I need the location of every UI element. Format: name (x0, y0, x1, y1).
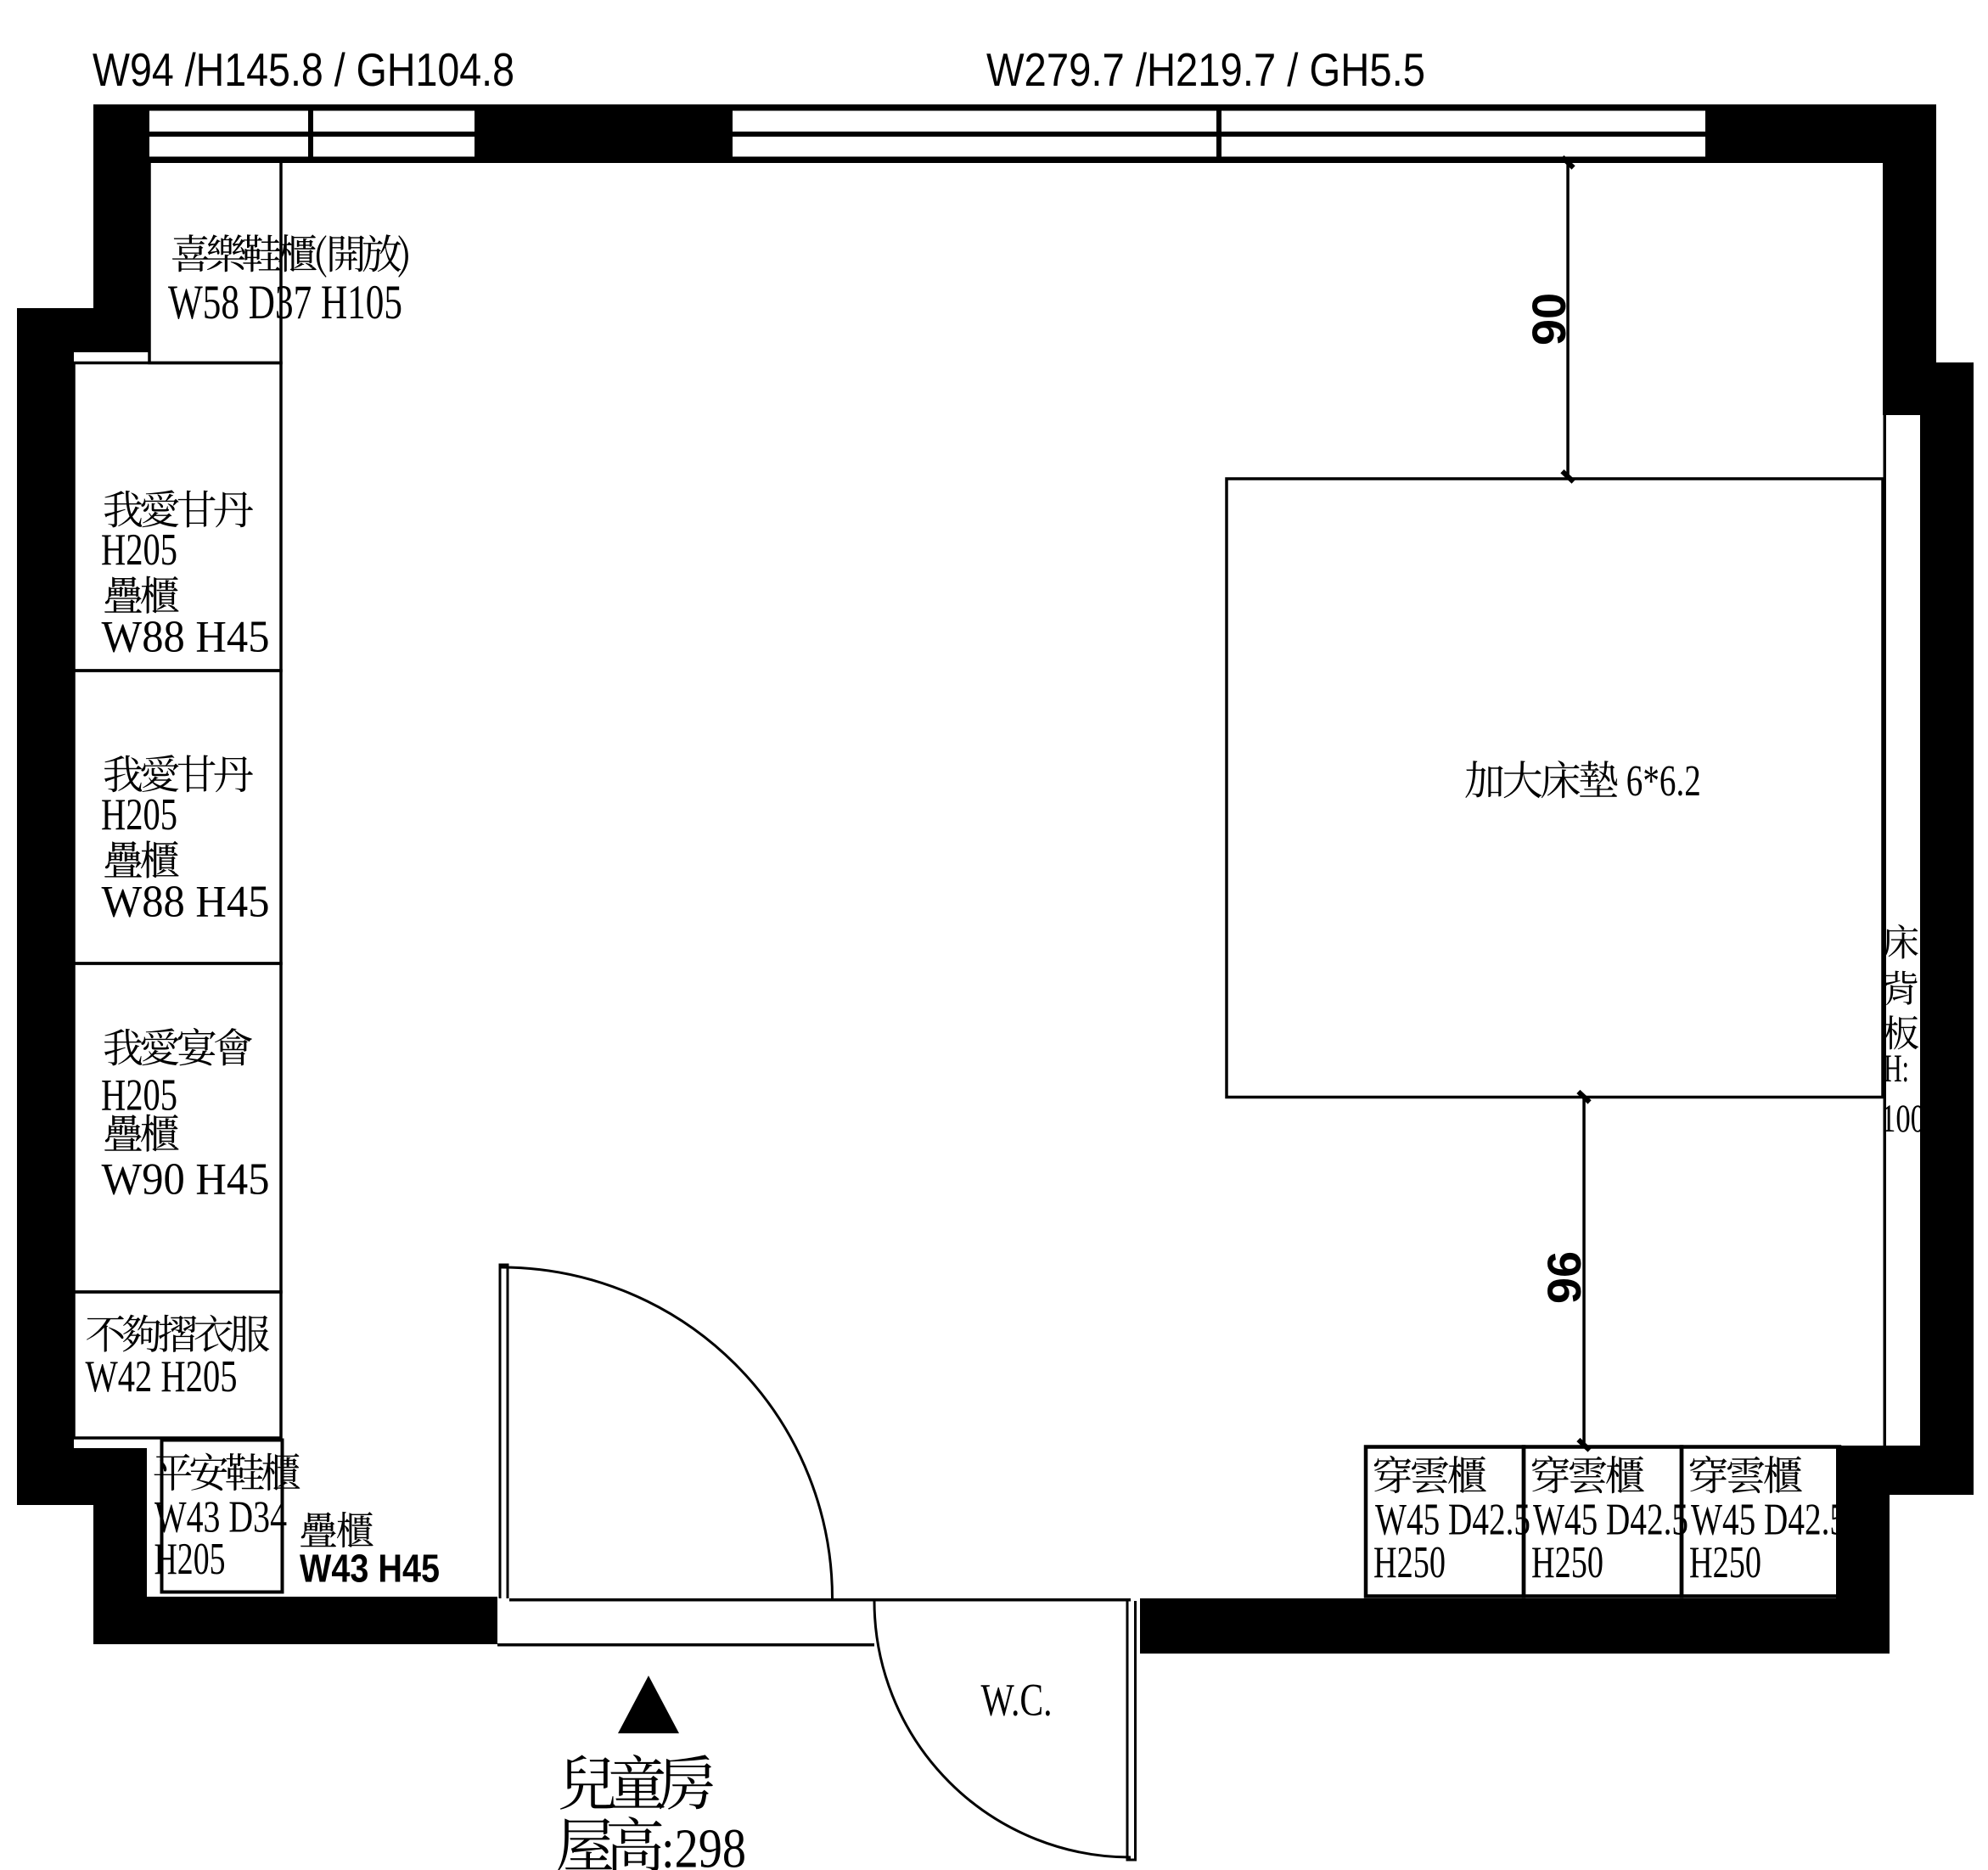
svg-text:W45 D42.5: W45 D42.5 (1533, 1496, 1688, 1545)
svg-text:H205: H205 (101, 1071, 177, 1120)
svg-text:H250: H250 (1531, 1538, 1603, 1587)
svg-text:96: 96 (1537, 1251, 1591, 1304)
svg-text:H250: H250 (1373, 1538, 1446, 1587)
svg-text:W88 H45: W88 H45 (102, 613, 270, 662)
svg-text:H205: H205 (101, 790, 177, 840)
svg-text:H205: H205 (154, 1535, 226, 1584)
svg-text:W.C.: W.C. (981, 1675, 1053, 1726)
svg-text:100: 100 (1881, 1097, 1925, 1141)
svg-text:W43 H45: W43 H45 (300, 1547, 440, 1591)
svg-text:H205: H205 (101, 525, 177, 575)
svg-text:W45 D42.5: W45 D42.5 (1375, 1496, 1530, 1545)
svg-text:W279.7 /H219.7 / GH5.5: W279.7 /H219.7 / GH5.5 (986, 43, 1425, 96)
svg-text:H250: H250 (1689, 1538, 1761, 1587)
svg-text:W42 H205: W42 H205 (86, 1352, 238, 1401)
svg-text:W90 H45: W90 H45 (102, 1154, 270, 1204)
svg-text:W88 H45: W88 H45 (102, 877, 270, 926)
svg-text:W45 D42.5: W45 D42.5 (1691, 1496, 1846, 1545)
svg-text:H:: H: (1884, 1047, 1909, 1091)
svg-text:6*6.2: 6*6.2 (1626, 757, 1701, 806)
svg-text:W94 /H145.8 / GH104.8: W94 /H145.8 / GH104.8 (93, 43, 514, 96)
svg-text::298: :298 (661, 1818, 746, 1870)
svg-text:90: 90 (1522, 293, 1575, 345)
svg-text:W58 D37 H105: W58 D37 H105 (168, 276, 402, 329)
